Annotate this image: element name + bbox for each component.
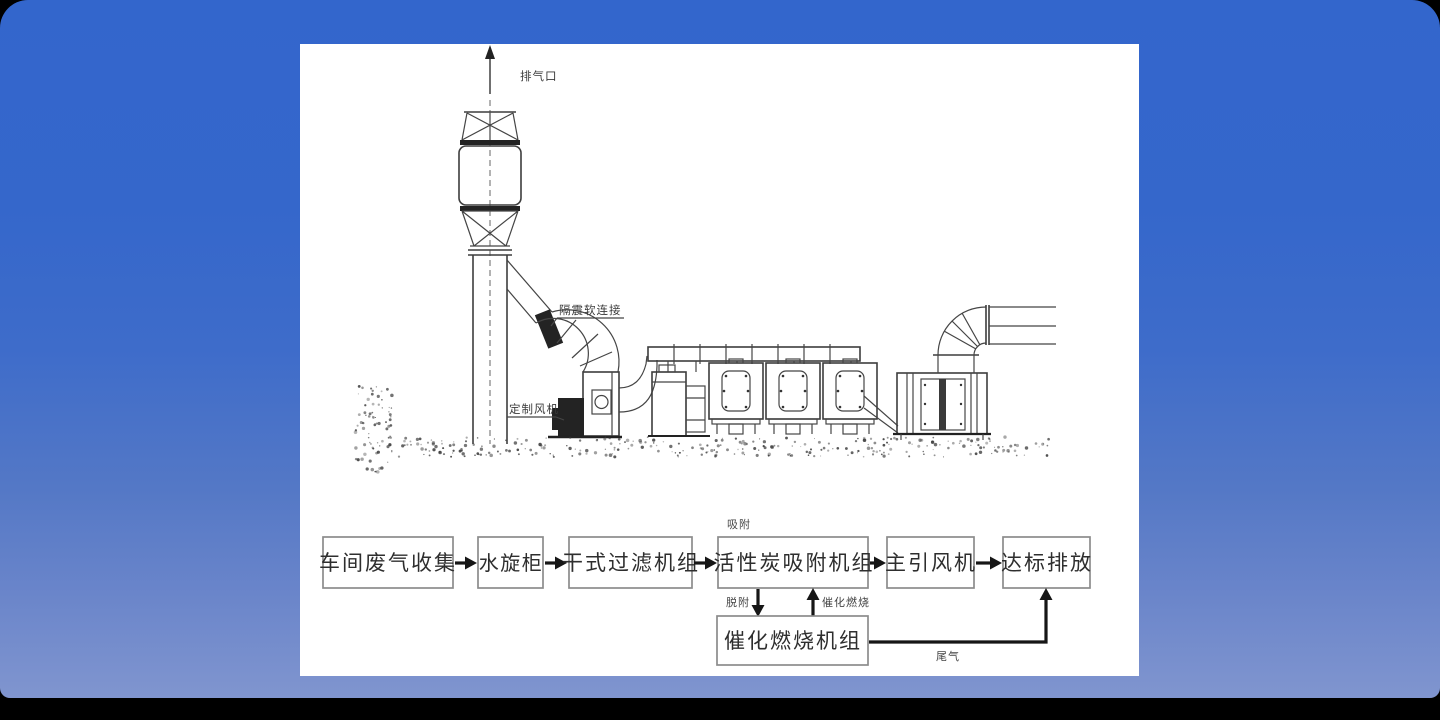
exhaust-stack: 排气口 [459,45,558,444]
catalytic-combustion-label: 催化燃烧 [822,595,870,609]
flow-box-label: 达标排放 [1001,551,1093,575]
tank-unit [648,365,710,436]
exhaust-outlet-label: 排气口 [520,69,558,83]
flow-box-dry-filter-unit: 干式过滤机组 [562,537,700,588]
custom-fan-label: 定制风机 [509,402,559,416]
flow-box-label: 催化燃烧机组 [724,629,862,653]
desorption-arrow [752,589,765,617]
flow-box-main-fan: 主引风机 [885,537,977,588]
horizontal-duct [648,344,860,372]
flow-box-workshop-gas-collection: 车间废气收集 [319,537,457,588]
flow-box-activated-carbon-unit: 活性炭吸附机组 [714,537,875,588]
tail-gas-label: 尾气 [936,649,960,663]
catalytic-return-arrow [807,588,820,616]
soft-connection-label: 隔震软连接 [559,303,622,317]
flow-arrow [455,557,477,570]
tail-gas-line [869,588,1053,642]
flow-box-water-spray-cabinet: 水旋柜 [478,537,543,588]
desorption-label: 脱附 [726,595,750,609]
adsorber-unit [823,359,877,434]
exhaust-arrow-icon [485,45,495,59]
catalytic-unit [893,305,1056,440]
flow-arrow [976,557,1002,570]
adsorption-label: 吸附 [727,517,751,531]
presentation-background: 排气口 [0,0,1440,698]
flow-box-compliant-emission: 达标排放 [1001,537,1093,588]
adsorber-unit [709,359,763,434]
diagram-slide: 排气口 [300,44,1139,676]
flow-box-label: 车间废气收集 [319,551,457,575]
flow-box-label: 主引风机 [885,551,977,575]
custom-fan: 定制风机 [507,356,657,437]
process-flowchart: 车间废气收集 水旋柜 干式过滤机组 [319,517,1093,665]
flow-box-label: 干式过滤机组 [562,551,700,575]
equipment-illustration: 排气口 [354,45,1056,474]
flow-box-label: 水旋柜 [479,552,544,575]
flow-box-label: 活性炭吸附机组 [714,551,875,575]
flow-box-catalytic-combustion-unit: 催化燃烧机组 [717,616,868,665]
stack-branch-duct: 隔震软连接 [507,260,624,372]
adsorber-units [709,359,898,434]
adsorber-unit [766,359,820,434]
